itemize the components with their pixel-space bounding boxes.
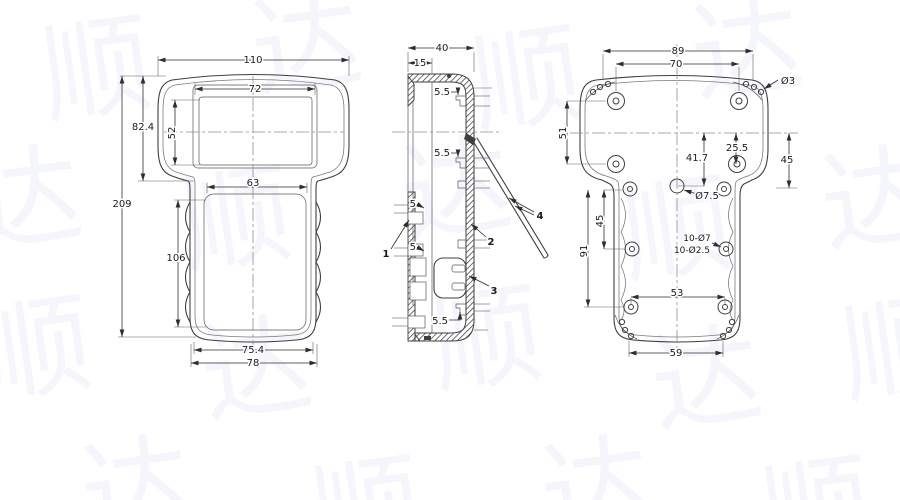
front-screen-bezel [193, 85, 317, 168]
dim-side-lid-depth: 15 [414, 58, 427, 69]
dim-front-grip-inner-width: 75.4 [242, 345, 264, 356]
callout-rear-case: 2 [488, 237, 495, 248]
front-grip-scallops-right [316, 202, 321, 322]
front-dimensions: 110 72 82.4 209 52 63 106 [112, 55, 349, 369]
dim-back-boss-offset: 25.5 [726, 143, 748, 154]
side-wall-section [408, 74, 474, 341]
dim-back-grip-boss-spacing-upper: 45 [595, 215, 606, 228]
front-view: 110 72 82.4 209 52 63 106 [112, 55, 349, 369]
dim-back-lower-boss-span: 53 [671, 288, 684, 299]
dim-side-rib-lower: 5 [410, 242, 416, 253]
callout-front-case: 1 [383, 249, 390, 260]
front-grip-opening [204, 194, 306, 330]
back-view: 89 70 Ø3 51 41.7 25.5 45 Ø7.5 [558, 44, 798, 359]
dim-side-boss-bottom: 5.5 [432, 316, 448, 327]
drawing-sheet: 顺 达 顺 达 达 顺 达 顺 达 顺 达 顺 达 顺 达 顺 达 顺 [0, 0, 900, 500]
dim-front-overall-height: 209 [112, 199, 131, 210]
back-dimensions: 89 70 Ø3 51 41.7 25.5 45 Ø7.5 [558, 46, 797, 359]
side-stand [464, 133, 548, 258]
dim-back-bottom-hole-span: 59 [670, 348, 683, 359]
dim-back-corner-hole-dia: Ø3 [781, 75, 795, 87]
dim-back-boss-callout-outer: 10-Ø7 [683, 233, 711, 244]
dim-back-head-boss-spacing: 51 [558, 127, 569, 140]
side-top-nub [447, 74, 451, 78]
dim-back-top-boss-span: 70 [670, 59, 683, 70]
dim-back-center-hole-dia: Ø7.5 [695, 190, 719, 202]
side-battery-door [434, 258, 466, 298]
dim-front-screen-width: 72 [249, 84, 262, 95]
dim-front-head-height: 82.4 [132, 122, 154, 133]
side-view: 40 15 5.5 5.5 5.5 5 5 1 2 [383, 43, 548, 341]
side-bottom-nub [424, 336, 431, 340]
dim-front-grip-opening-width: 63 [247, 178, 260, 189]
front-screen-display [199, 97, 312, 165]
callout-battery-door: 3 [491, 286, 498, 297]
front-grip-scallops-left [186, 202, 191, 322]
dim-front-screen-height: 52 [167, 127, 178, 140]
technical-drawing: 110 72 82.4 209 52 63 106 [0, 0, 900, 500]
back-outline-outer [580, 76, 768, 343]
back-grip-scallops-left [621, 198, 626, 320]
dim-side-boss-top: 5.5 [434, 87, 450, 98]
side-bosses [408, 96, 466, 328]
back-corner-pads [586, 82, 762, 339]
dim-front-grip-opening-height: 106 [166, 253, 185, 264]
callout-stand: 4 [537, 211, 544, 222]
dim-front-grip-width: 78 [247, 358, 260, 369]
dim-back-corner-hole-span: 89 [672, 46, 685, 57]
dim-front-overall-width: 110 [243, 55, 262, 66]
dim-side-boss-middle: 5.5 [434, 148, 450, 159]
side-extension-stubs [392, 88, 492, 330]
dim-side-depth: 40 [436, 43, 449, 54]
dim-back-boss-callout-inner: 10-Ø2.5 [674, 245, 710, 256]
dim-back-grip-boss-spacing: 91 [579, 245, 590, 258]
dim-back-center-hole-offset: 41.7 [686, 153, 708, 164]
dim-side-rib-upper: 5 [410, 199, 416, 210]
back-screw-bosses [608, 93, 748, 315]
dim-back-head-right-offset: 45 [781, 155, 794, 166]
